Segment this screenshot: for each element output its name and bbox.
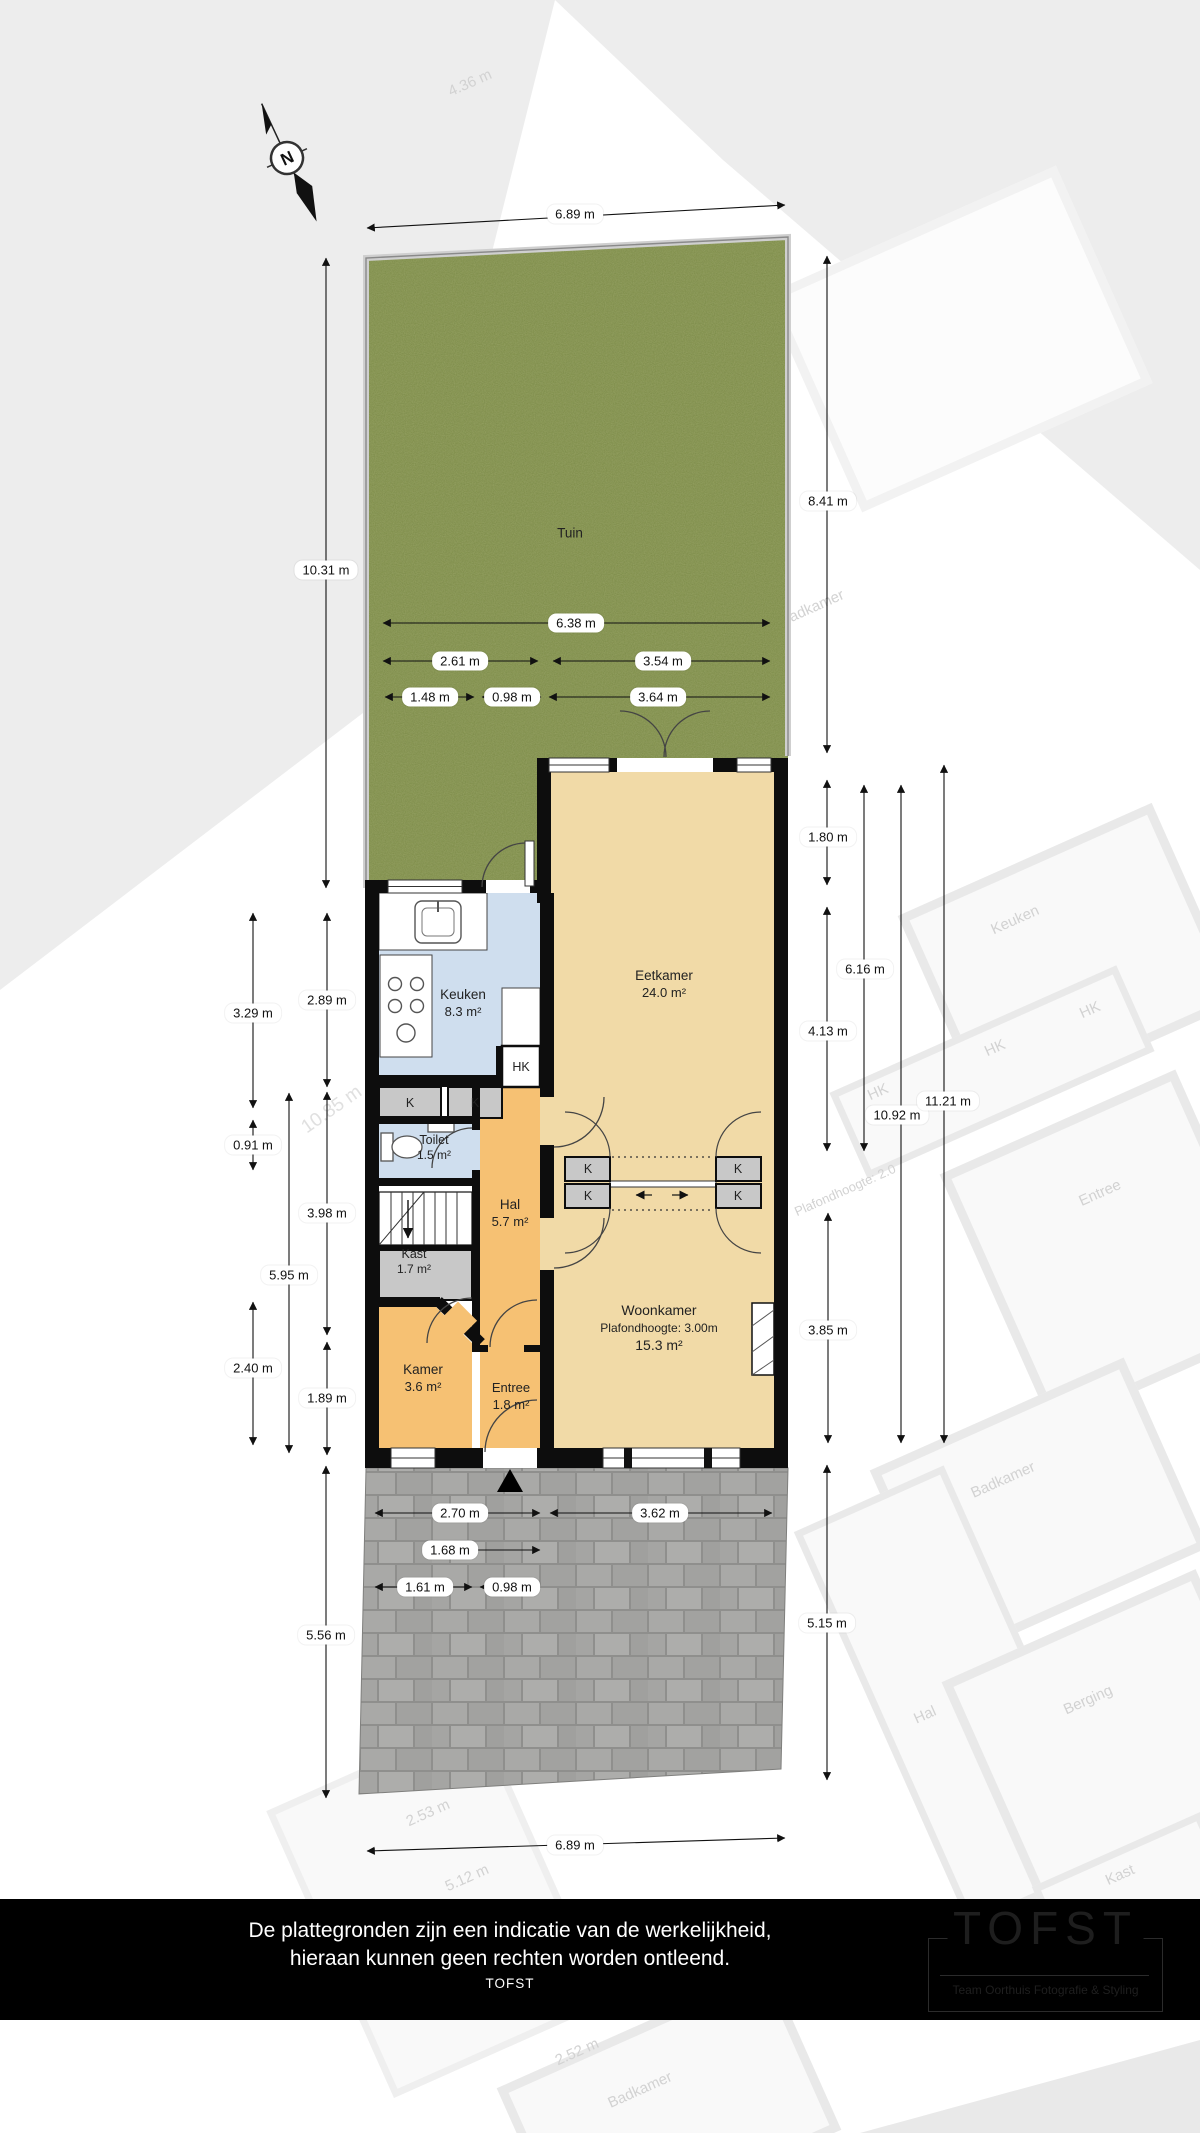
room-name: Eetkamer [635,968,693,983]
dim-garden-right: 3.54 m [635,652,691,671]
dim-left-inner1: 2.89 m [299,991,355,1010]
dim-left-outer1: 3.29 m [225,1004,281,1023]
garden-doors-gap [617,758,713,772]
room-label-hal: Hal 5.7 m² [492,1196,529,1230]
ensuite-door-track [610,1181,716,1187]
logo-title: TOFST [947,1901,1144,1955]
room-label-kast: Kast 1.7 m² [397,1247,431,1277]
dim-left-outer3: 2.40 m [225,1359,281,1378]
logo-subtitle: Team Oorthuis Fotografie & Styling [952,1983,1138,1997]
room-label-eetkamer: Eetkamer 24.0 m² [635,967,693,1001]
room-area: 1.8 m² [493,1397,530,1412]
disclaimer-line2: hieraan kunnen geen rechten worden ontle… [160,1945,860,1973]
floorplan-drawing: N [0,0,1200,2133]
dim-left-mid: 5.95 m [261,1266,317,1285]
closet-label-k: K [471,1096,479,1110]
logo-divider [940,1975,1149,1976]
dim-bottom-width: 6.89 m [547,1836,603,1855]
tofst-logo: TOFST Team Oorthuis Fotografie & Styling [928,1899,1163,2020]
dim-left-inner3: 1.89 m [299,1389,355,1408]
dim-left-outer2: 0.91 m [225,1136,281,1155]
room-area: 5.7 m² [492,1214,529,1229]
compass-south-blade [288,168,326,224]
room-label-tuin: Tuin [557,525,583,542]
room-name: Hal [500,1197,520,1212]
dim-left-inner2: 3.98 m [299,1204,355,1223]
room-area: 24.0 m² [642,985,686,1000]
closet-label-k: K [406,1096,414,1110]
room-name: Woonkamer [621,1302,696,1318]
room-label-kamer: Kamer 3.6 m² [403,1361,443,1395]
dim-top-width: 6.89 m [547,205,603,224]
front-door-gap [483,1448,537,1468]
dim-garden-w2: 0.98 m [484,688,540,707]
floorplan-page: Keuken HK HK HK Entree Badkamer Hal Berg… [0,0,1200,2133]
backdoor-leaf [525,841,534,886]
dim-garden-left: 2.61 m [432,652,488,671]
dim-garden-w1: 1.48 m [402,688,458,707]
closet-label-k: K [734,1189,742,1203]
room-area: 8.3 m² [445,1004,482,1019]
dim-right-terrace: 5.15 m [799,1614,855,1633]
disclaimer-line3: TOFST [160,1973,860,1995]
dim-right-long2: 11.21 m [917,1092,979,1111]
room-area: 15.3 m² [635,1337,682,1353]
room-name: Keuken [440,987,486,1002]
closet-label-k: K [584,1162,592,1176]
dim-garden-full: 6.38 m [548,614,604,633]
dim-garden-w3: 3.64 m [630,688,686,707]
dim-right-garden: 8.41 m [800,492,856,511]
dim-left-garden: 10.31 m [295,561,358,580]
room-area: 1.7 m² [397,1262,431,1276]
dim-right-woonkamer: 3.85 m [800,1321,856,1340]
room-name: Toilet [419,1133,448,1147]
disclaimer-text: De plattegronden zijn een indicatie van … [160,1917,860,1995]
room-label-woonkamer: Woonkamer Plafondhoogte: 3.00m 15.3 m² [600,1302,717,1354]
room-area: 1.5 m² [417,1148,451,1162]
room-label-keuken: Keuken 8.3 m² [440,986,486,1020]
dim-left-terrace: 5.56 m [298,1626,354,1645]
room-ceiling-height: Plafondhoogte: 3.00m [600,1321,717,1335]
dim-right-top: 1.80 m [800,828,856,847]
dim-right-eetkamer: 4.13 m [800,1022,856,1041]
room-label-toilet: Toilet 1.5 m² [417,1133,451,1163]
room-name: Kamer [403,1362,443,1377]
dim-terrace-right: 3.62 m [632,1504,688,1523]
disclaimer-bar: De plattegronden zijn een indicatie van … [0,1899,1200,2020]
disclaimer-line1: De plattegronden zijn een indicatie van … [160,1917,860,1945]
dim-terrace-m2: 1.61 m [397,1578,453,1597]
dim-terrace-m3: 0.98 m [484,1578,540,1597]
room-name: Entree [492,1380,530,1395]
dim-terrace-m1: 1.68 m [422,1541,478,1560]
closet-label-hk: HK [512,1060,529,1074]
toilet-tank [381,1133,393,1161]
terrace-paving [359,1468,788,1794]
compass: N [242,94,337,230]
dim-right-mid: 6.16 m [837,960,893,979]
room-area: 3.6 m² [405,1379,442,1394]
kitchen-backdoor-gap [486,880,530,893]
stairs [379,1192,472,1245]
closet-label-k: K [734,1162,742,1176]
room-label-entree: Entree 1.8 m² [492,1379,530,1413]
closet-label-k: K [584,1189,592,1203]
room-name: Kast [401,1247,426,1261]
dim-terrace-left: 2.70 m [432,1504,488,1523]
